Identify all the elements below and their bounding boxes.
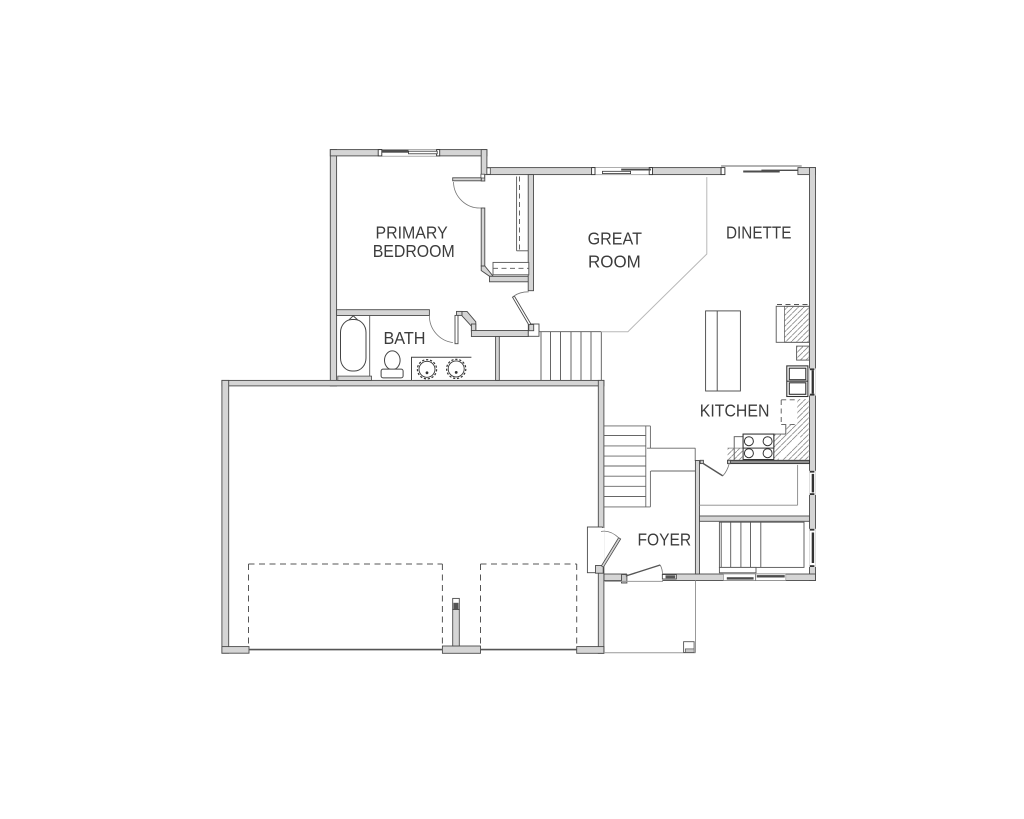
svg-text:GREAT: GREAT <box>588 228 643 248</box>
svg-text:ROOM: ROOM <box>588 252 641 272</box>
svg-text:KITCHEN: KITCHEN <box>700 401 770 421</box>
svg-text:PRIMARY: PRIMARY <box>376 222 448 242</box>
svg-text:FOYER: FOYER <box>637 529 691 549</box>
svg-text:BATH: BATH <box>383 328 425 348</box>
svg-text:DINETTE: DINETTE <box>726 222 791 242</box>
svg-text:BEDROOM: BEDROOM <box>373 241 455 261</box>
